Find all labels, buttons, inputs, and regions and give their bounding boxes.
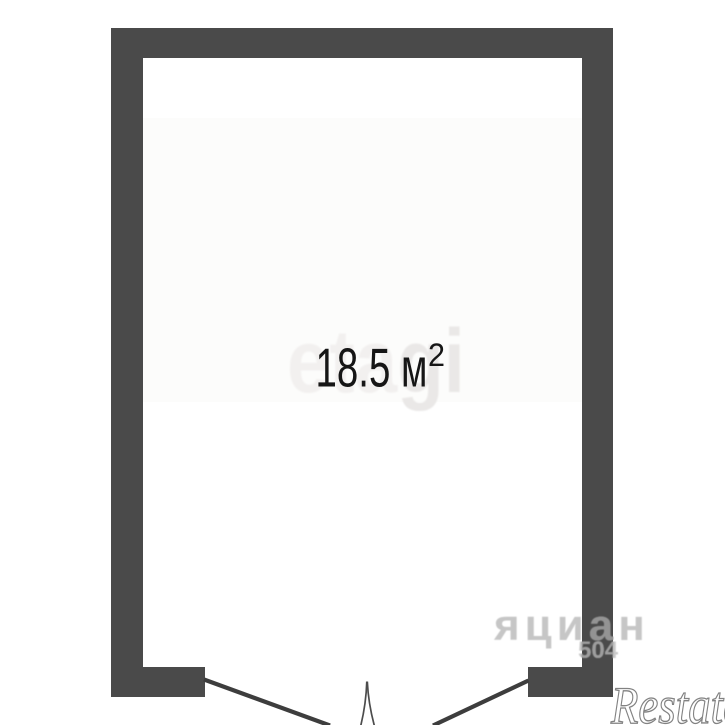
svg-text:Restate: Restate [610,677,725,725]
